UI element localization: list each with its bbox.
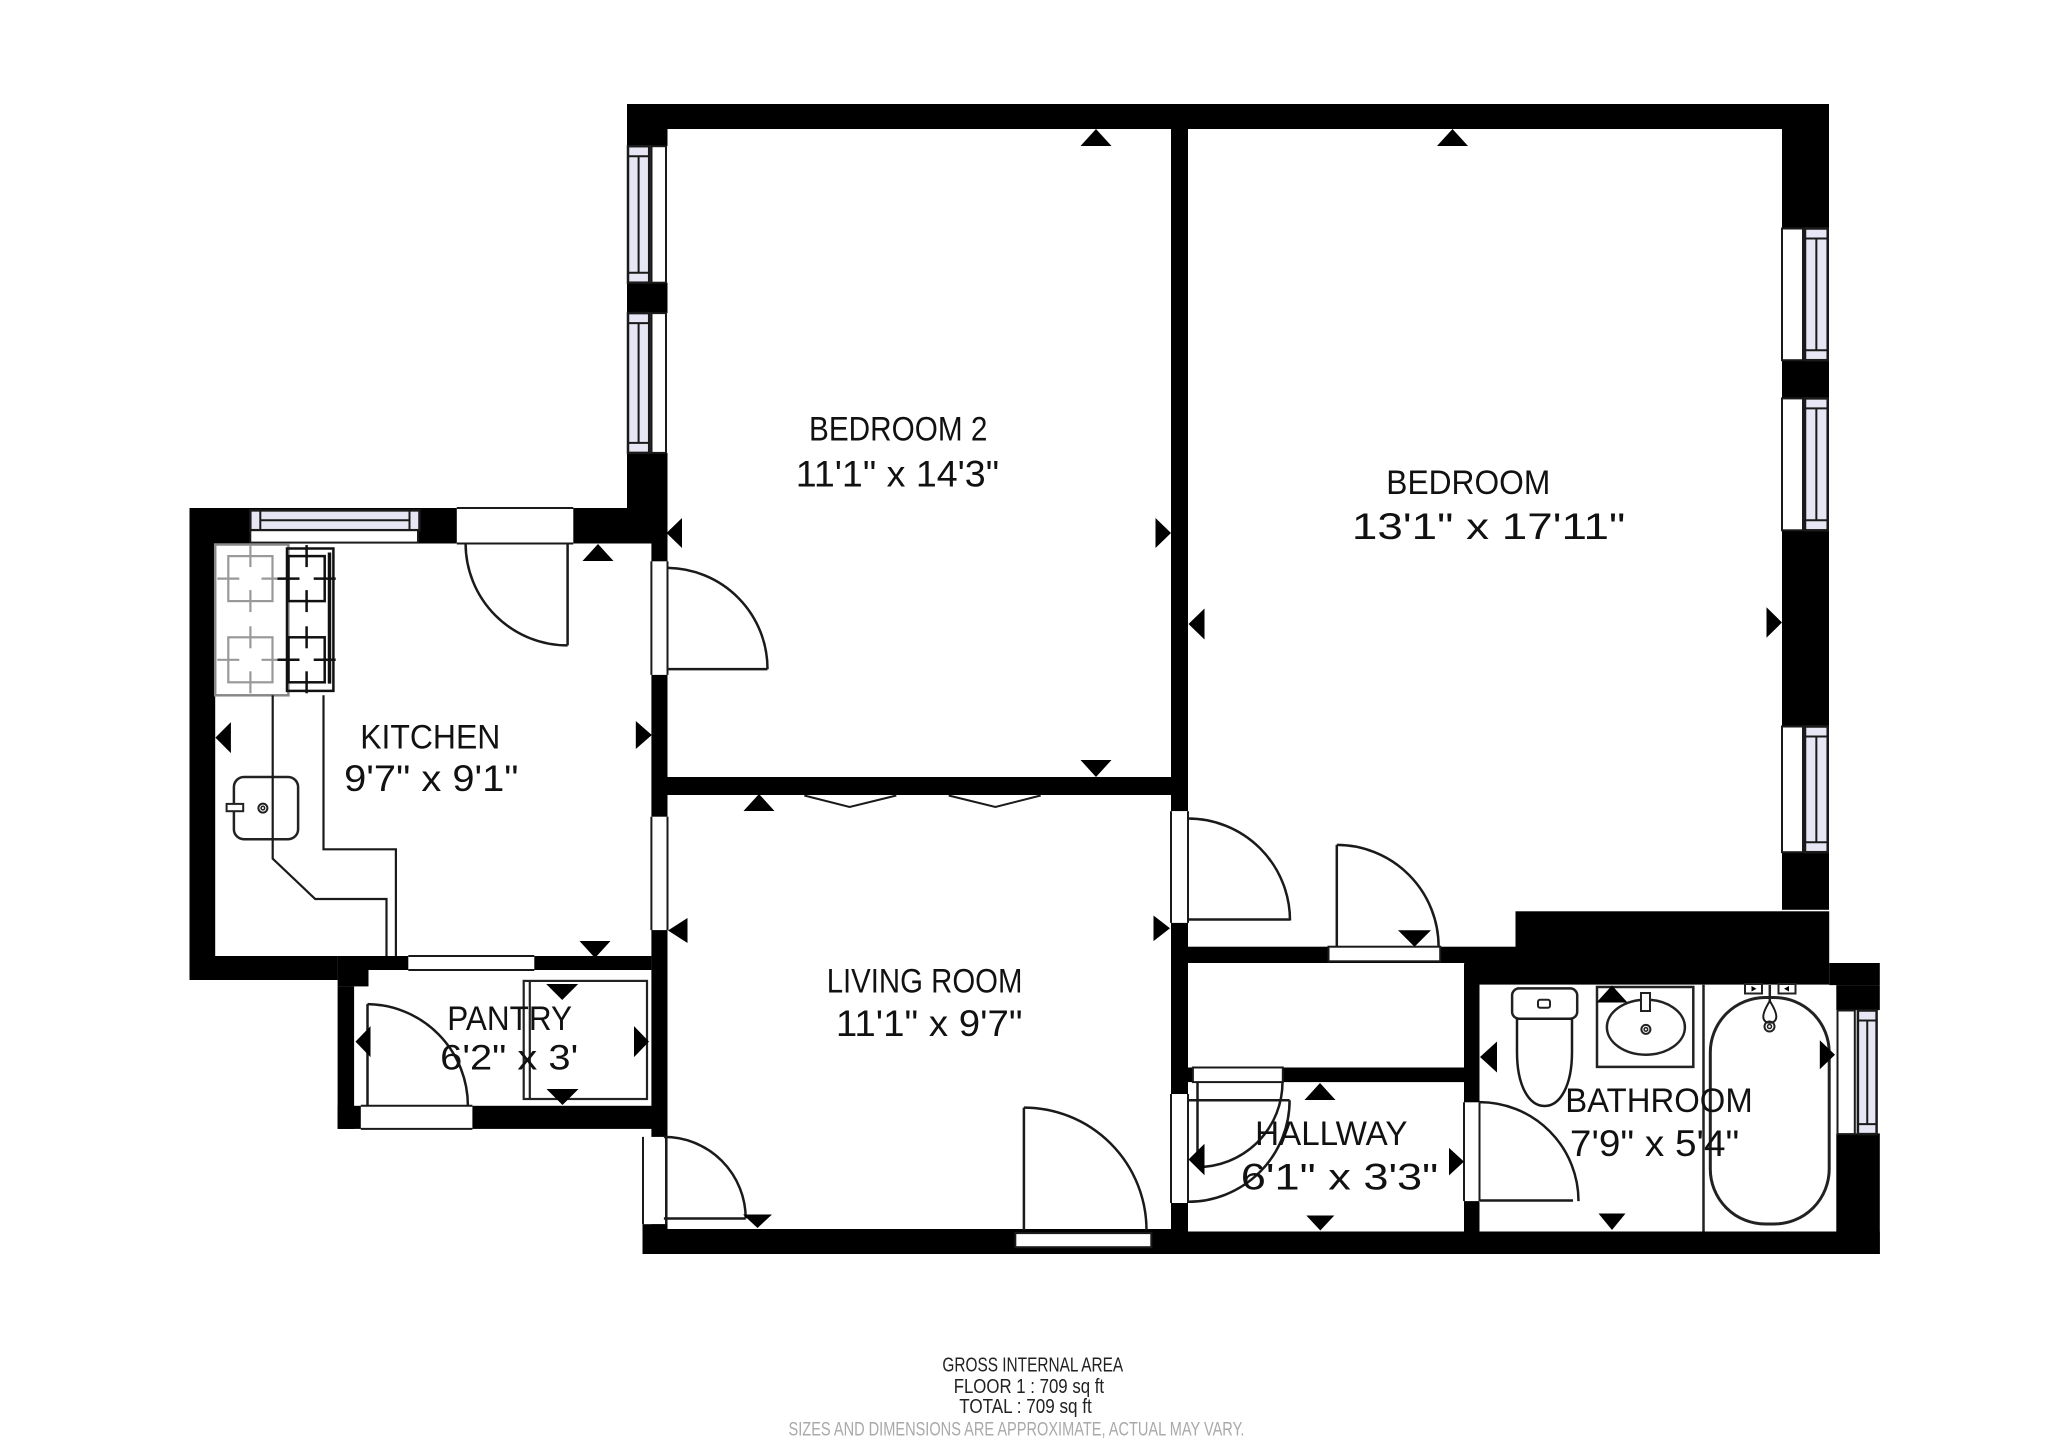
svg-text:KITCHEN: KITCHEN [360, 718, 500, 756]
svg-text:11'1" x 14'3": 11'1" x 14'3" [796, 452, 999, 494]
svg-text:7'9" x 5'4": 7'9" x 5'4" [1570, 1122, 1739, 1164]
svg-text:PANTRY: PANTRY [447, 1000, 572, 1038]
svg-text:LIVING ROOM: LIVING ROOM [827, 962, 1023, 1000]
svg-text:6'2" x 3': 6'2" x 3' [440, 1038, 578, 1077]
svg-text:TOTAL : 709 sq ft: TOTAL : 709 sq ft [959, 1395, 1092, 1418]
svg-text:9'7" x 9'1": 9'7" x 9'1" [344, 757, 518, 799]
svg-text:SIZES AND DIMENSIONS ARE APPRO: SIZES AND DIMENSIONS ARE APPROXIMATE, AC… [789, 1419, 1245, 1441]
svg-text:BEDROOM: BEDROOM [1386, 464, 1550, 502]
svg-text:BEDROOM 2: BEDROOM 2 [809, 411, 987, 449]
svg-text:BATHROOM: BATHROOM [1565, 1082, 1753, 1120]
svg-text:13'1" x 17'11": 13'1" x 17'11" [1352, 505, 1625, 547]
svg-text:HALLWAY: HALLWAY [1255, 1115, 1407, 1153]
svg-text:6'1" x 3'3": 6'1" x 3'3" [1241, 1155, 1438, 1197]
svg-text:GROSS INTERNAL AREA: GROSS INTERNAL AREA [942, 1353, 1123, 1376]
svg-text:11'1" x 9'7": 11'1" x 9'7" [836, 1002, 1023, 1044]
